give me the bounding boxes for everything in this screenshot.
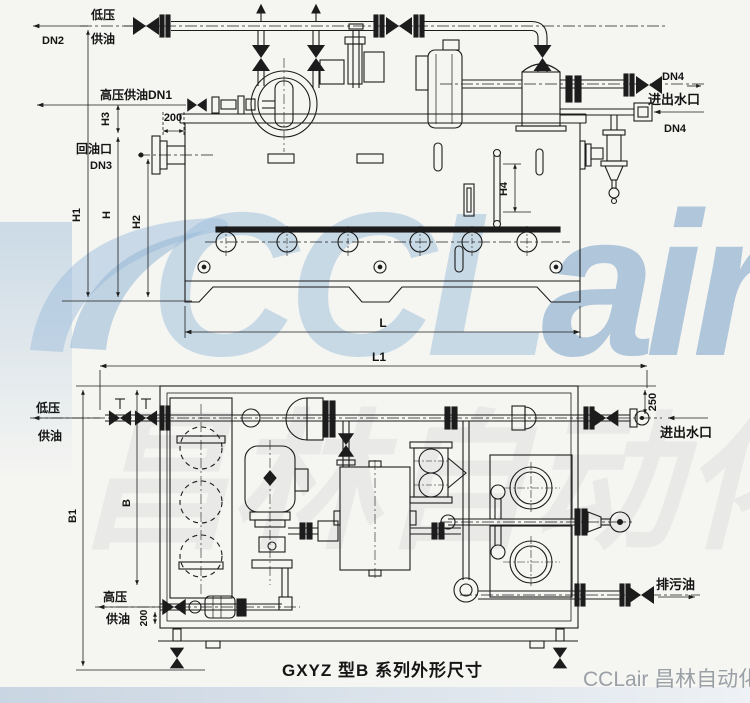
label-b: B bbox=[121, 499, 133, 507]
label-h3: H3 bbox=[100, 112, 112, 126]
label-h2: H2 bbox=[131, 215, 143, 229]
label-h: H bbox=[101, 211, 113, 219]
plan-gear-pump bbox=[410, 442, 466, 503]
plan-filter-block bbox=[334, 421, 416, 578]
foot-screw-icon bbox=[170, 648, 184, 669]
valve-icon bbox=[307, 45, 325, 71]
plan-view bbox=[30, 386, 700, 668]
label-hp-supply-oil: 供油 bbox=[105, 611, 130, 626]
valve-icon bbox=[109, 410, 131, 425]
label-hp: 高压 bbox=[103, 589, 127, 604]
label-hp-supply-dn1: 高压供油DN1 bbox=[100, 87, 172, 102]
plan-motor-pump bbox=[245, 440, 461, 585]
label-low-pressure: 低压 bbox=[90, 7, 115, 22]
label-200-plan: 200 bbox=[139, 609, 150, 626]
label-b1: B1 bbox=[67, 509, 79, 523]
plan-coolers bbox=[490, 455, 572, 597]
label-dn3: DN3 bbox=[90, 160, 112, 172]
label-l1: L1 bbox=[372, 350, 386, 364]
plan-left-compartment bbox=[170, 398, 232, 598]
label-200-front: 200 bbox=[164, 112, 182, 124]
label-drain: 排污油 bbox=[656, 577, 695, 592]
valve-icon bbox=[534, 45, 552, 71]
drawing-caption: GXYZ 型B 系列外形尺寸 bbox=[282, 656, 483, 681]
valve-icon bbox=[252, 45, 270, 71]
label-dn4-out: DN4 bbox=[662, 71, 685, 83]
label-l: L bbox=[379, 316, 386, 330]
front-tank bbox=[180, 114, 586, 302]
valve-icon bbox=[628, 586, 654, 604]
label-dn2: DN2 bbox=[42, 35, 64, 47]
label-water-inout-front: 进出水口 bbox=[648, 92, 700, 107]
label-h4: H4 bbox=[498, 181, 510, 196]
foot-screw-icon bbox=[553, 648, 567, 669]
plan-view-labels: L1 250 低压 供油 进出水口 B1 B 高压 供油 200 排污油 bbox=[35, 350, 712, 626]
front-view bbox=[37, 5, 706, 302]
valve-icon bbox=[162, 599, 185, 615]
label-return-port: 回油口 bbox=[76, 141, 112, 156]
front-view-dimensions bbox=[33, 26, 701, 338]
valve-icon bbox=[594, 409, 619, 426]
technical-drawing-page: CCLair 昌林自动化 bbox=[0, 0, 750, 703]
hydraulic-station-drawing: 低压 供油 DN2 高压供油DN1 H3 200 回油口 DN3 H1 H H2… bbox=[0, 0, 750, 703]
valve-icon bbox=[135, 410, 157, 425]
label-h1: H1 bbox=[71, 208, 83, 222]
plan-view-dimensions bbox=[33, 366, 708, 670]
valve-icon bbox=[338, 433, 354, 456]
valve-icon bbox=[187, 98, 207, 112]
valve-icon bbox=[133, 17, 159, 35]
label-supply-oil-plan: 供油 bbox=[37, 428, 62, 443]
label-supply-oil: 供油 bbox=[90, 31, 115, 46]
label-250: 250 bbox=[647, 393, 659, 411]
brand-watermark-text: CCLair 昌林自动化 bbox=[583, 663, 750, 693]
label-water-inout-plan: 进出水口 bbox=[660, 425, 712, 440]
plan-tank-outline bbox=[160, 386, 578, 628]
return-port-flange bbox=[138, 136, 214, 174]
label-dn4-in: DN4 bbox=[664, 123, 687, 135]
valve-icon bbox=[386, 17, 412, 35]
label-low-pressure-plan: 低压 bbox=[35, 400, 60, 415]
